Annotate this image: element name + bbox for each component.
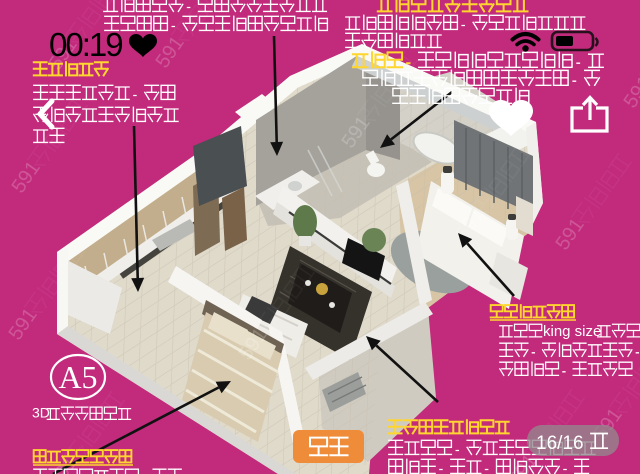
- svg-text:16/16: 16/16: [536, 433, 584, 454]
- svg-text:king size: king size: [543, 323, 601, 340]
- svg-text:A5: A5: [58, 359, 97, 395]
- svg-text:00:19: 00:19: [49, 26, 122, 63]
- svg-text:3D: 3D: [32, 405, 50, 421]
